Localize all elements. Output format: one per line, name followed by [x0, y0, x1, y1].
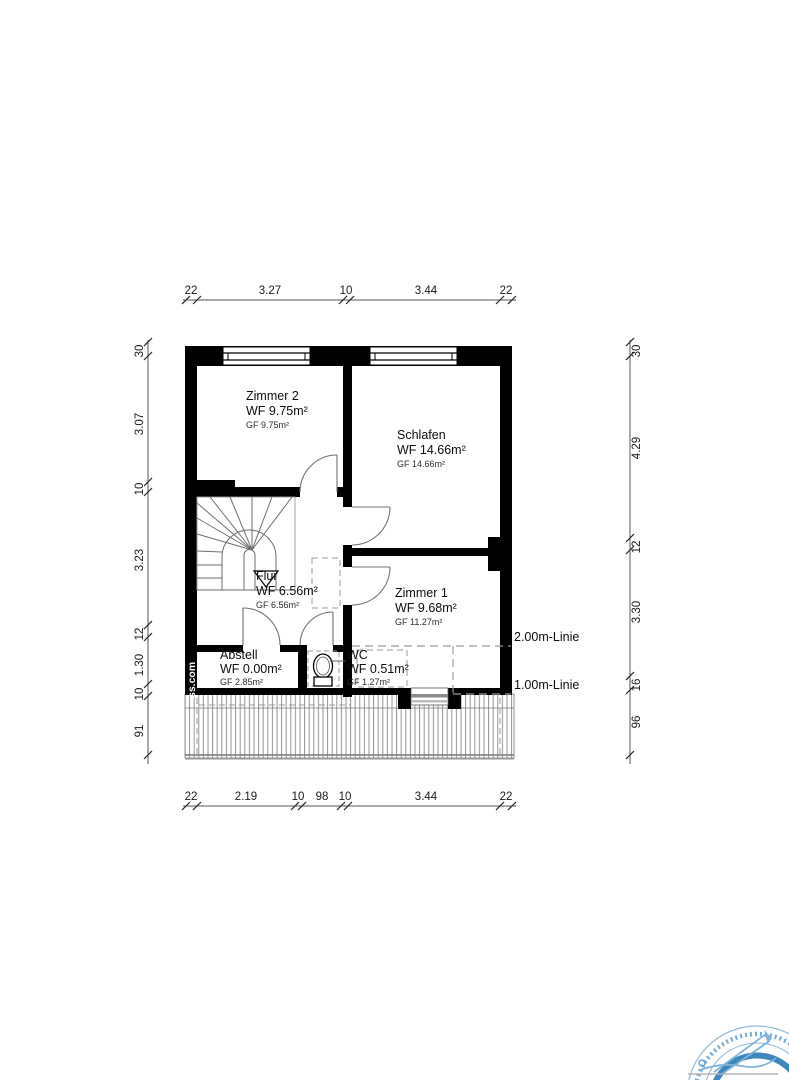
door-schlafen	[352, 507, 390, 545]
room-gf: GF 9.75m²	[246, 420, 289, 430]
dim-label: 10	[134, 483, 146, 496]
door-zimmer2	[300, 455, 337, 492]
dimension-chain-bottom: 22 2.19 10 98 10 3.44 22	[182, 791, 516, 810]
room-gf: GF 1.27m²	[347, 677, 390, 687]
stair-outline	[197, 497, 295, 590]
door-zimmer1	[352, 567, 390, 605]
room-label-schlafen: Schlafen WF 14.66m² GF 14.66m²	[397, 428, 466, 469]
dimension-chain-right: 30 4.29 12 3.30 16 96	[626, 338, 643, 764]
dim-label: 10	[134, 688, 146, 701]
flur-dashed-box	[312, 558, 340, 608]
dim-label: 22	[185, 285, 198, 297]
architect-stamp-logo	[687, 1026, 789, 1080]
room-wf: WF 0.51m²	[347, 662, 409, 676]
hatch-area	[185, 694, 514, 758]
wall-central-upper	[343, 366, 352, 507]
room-gf: GF 11.27m²	[395, 617, 442, 627]
room-gf: GF 6.56m²	[256, 600, 299, 610]
staircase	[197, 497, 295, 590]
room-wf: WF 14.66m²	[397, 443, 466, 457]
wall-right	[500, 346, 512, 695]
toilet-icon	[308, 651, 346, 686]
room-wf: WF 6.56m²	[256, 584, 318, 598]
room-name: Flur	[256, 569, 278, 583]
dimension-chain-left: 30 3.07 10 3.23 12 1.30 10 91	[134, 338, 152, 764]
wall-stair-block	[185, 480, 235, 497]
dim-label: 3.44	[415, 285, 438, 297]
dim-label: 3.07	[134, 413, 146, 435]
dim-label: 3.44	[415, 791, 438, 803]
dim-label: 12	[631, 541, 643, 554]
dim-label: 22	[185, 791, 198, 803]
dim-label: 4.29	[631, 437, 643, 459]
dim-label: 3.23	[134, 549, 146, 571]
dim-label: 12	[134, 628, 146, 641]
terrace-hatch	[185, 694, 514, 759]
wall-left	[185, 346, 197, 695]
room-name: Zimmer 1	[395, 586, 448, 600]
window-top-left	[223, 347, 310, 365]
room-label-abstell: Abstell WF 0.00m² GF 2.85m²	[220, 648, 282, 687]
floor-plan-page: 2.00m-Linie 1.00m-Linie Zimmer 2 WF 9.75…	[0, 0, 789, 1080]
two-m-line-label: 2.00m-Linie	[514, 630, 579, 644]
wall-schlafen-zimmer1	[343, 548, 512, 556]
room-label-wc: WC WF 0.51m² GF 1.27m²	[347, 648, 409, 687]
room-label-zimmer2: Zimmer 2 WF 9.75m² GF 9.75m²	[246, 389, 308, 430]
wall-bottom-left	[185, 688, 398, 695]
window-jamb-left	[398, 688, 411, 709]
watermark-text: ss.com	[186, 662, 198, 698]
room-name: Zimmer 2	[246, 389, 299, 403]
dim-label: 91	[134, 725, 146, 738]
dim-label: 3.30	[631, 601, 643, 623]
room-wf: WF 0.00m²	[220, 662, 282, 676]
room-wf: WF 9.75m²	[246, 404, 308, 418]
dim-label: 10	[339, 791, 352, 803]
window-bottom	[411, 688, 448, 705]
door-wc	[300, 612, 333, 645]
room-label-flur: Flur WF 6.56m² GF 6.56m²	[256, 569, 318, 610]
dim-label: 3.27	[259, 285, 281, 297]
dim-label: 96	[631, 716, 643, 729]
dim-label: 22	[500, 285, 513, 297]
room-gf: GF 2.85m²	[220, 677, 263, 687]
dim-label: 10	[340, 285, 353, 297]
room-name: WC	[347, 648, 368, 662]
stair-spine	[244, 550, 255, 591]
room-name: Abstell	[220, 648, 258, 662]
room-gf: GF 14.66m²	[397, 459, 445, 469]
room-wf: WF 9.68m²	[395, 601, 457, 615]
wall-zimmer2-bottom-right	[337, 487, 343, 497]
dim-label: 30	[631, 345, 643, 358]
dim-label: 2.19	[235, 791, 257, 803]
dim-label: 30	[134, 345, 146, 358]
wall-pier-right	[488, 537, 502, 571]
window-top-right	[370, 347, 457, 365]
dimension-chain-top: 22 3.27 10 3.44 22	[182, 285, 516, 304]
dim-label: 98	[316, 791, 329, 803]
dim-label: 10	[292, 791, 305, 803]
wall-zimmer2-bottom-left	[235, 487, 300, 497]
wall-abstell-wc	[298, 645, 307, 695]
window-jamb-right	[448, 688, 461, 709]
door-abstell	[243, 608, 280, 645]
room-name: Schlafen	[397, 428, 446, 442]
one-m-line-label: 1.00m-Linie	[514, 678, 579, 692]
room-label-zimmer1: Zimmer 1 WF 9.68m² GF 11.27m²	[395, 586, 457, 627]
dim-label: 1.30	[134, 654, 146, 676]
dim-label: 22	[500, 791, 513, 803]
dim-label: 16	[631, 679, 643, 692]
